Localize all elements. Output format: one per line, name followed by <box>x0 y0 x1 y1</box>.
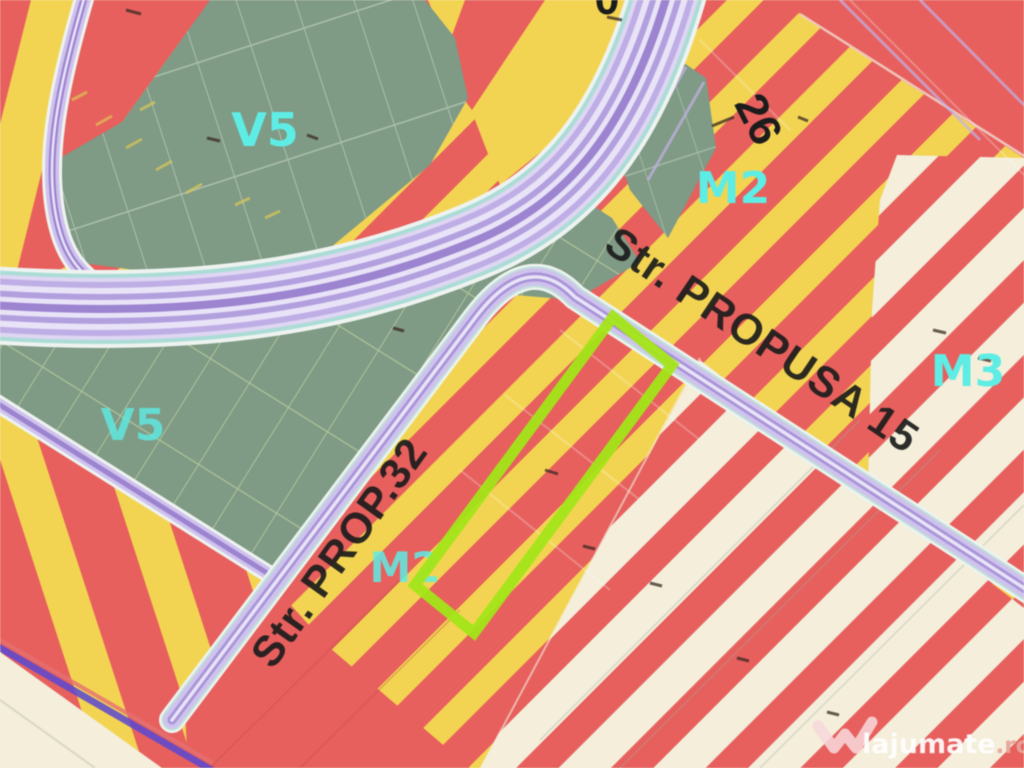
watermark-tld-text: .ro <box>996 733 1024 759</box>
zone-label-m2: M2 <box>696 163 770 214</box>
parcel-number-partial-top: 0 <box>594 0 619 24</box>
zoning-map-canvas: V5 V5 M2 M3 M2 26 0 Str. PROPUSA 15 Str.… <box>0 0 1024 768</box>
zone-label-v5-upper: V5 <box>231 103 299 157</box>
zone-label-v5-lower: V5 <box>101 400 166 451</box>
zoning-map: V5 V5 M2 M3 M2 26 0 Str. PROPUSA 15 Str.… <box>0 0 1024 768</box>
watermark-brand: lajumate.ro <box>862 729 1024 760</box>
watermark-brand-text: lajumate <box>862 729 996 760</box>
zone-label-m3: M3 <box>931 346 1005 397</box>
